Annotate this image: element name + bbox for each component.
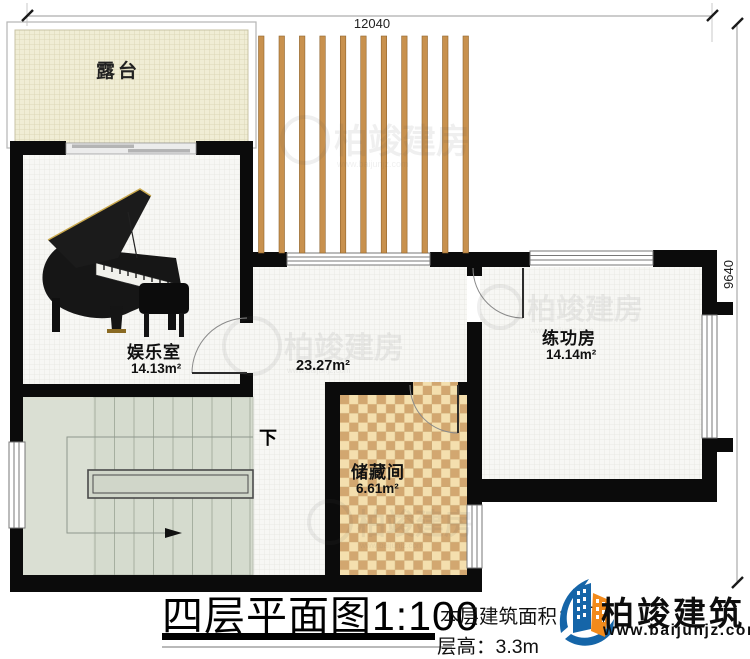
dimension-top-label: 12040 — [344, 17, 400, 30]
practice-room-label: 练功房 — [542, 330, 596, 347]
hall-top-window — [287, 253, 430, 265]
floor-plan-drawing: 柏竣建房 www.baijunjz.com 柏竣建房 www.baijunjz.… — [0, 0, 750, 658]
storage-door-notch-floor — [413, 382, 458, 395]
floor-plan-page: 柏竣建房 www.baijunjz.com 柏竣建房 www.baijunjz.… — [0, 0, 750, 658]
piano-pedal-lyre — [110, 306, 123, 331]
stairs-down-label: 下 — [259, 429, 277, 447]
hall-floor — [252, 265, 467, 384]
terrace-label: 露台 — [96, 62, 140, 81]
storage-room-label: 储藏间 — [351, 464, 405, 481]
svg-text:柏竣建房: 柏竣建房 — [334, 122, 470, 161]
svg-text:柏竣建房: 柏竣建房 — [357, 507, 473, 541]
title-underline-thin — [162, 646, 452, 648]
entertainment-room-area: 14.13m² — [131, 362, 181, 376]
corridor-floor — [253, 384, 325, 575]
entertainment-room-label: 娱乐室 — [127, 344, 181, 361]
watermark: 柏竣建房 www.baijunjz.com — [282, 117, 470, 169]
svg-text:柏竣建房: 柏竣建房 — [527, 292, 643, 326]
terrace-sliding-door — [66, 143, 196, 154]
floor-height: 层高：3.3m — [437, 630, 539, 659]
storage-room-area: 6.61m² — [356, 482, 399, 496]
practice-top-window — [530, 251, 653, 265]
practice-room-area: 14.14m² — [546, 348, 596, 362]
hall-area: 23.27m² — [296, 359, 350, 374]
door-opening-floor — [240, 323, 253, 373]
stairs-left-window — [9, 442, 25, 528]
dimension-right-label: 9640 — [722, 260, 735, 289]
terrace-structure — [7, 22, 256, 148]
title-underline-thick — [162, 633, 435, 640]
svg-text:www.baijunjz.com: www.baijunjz.com — [359, 541, 424, 550]
stair-handrail — [88, 470, 253, 498]
svg-text:www.baijunjz.com: www.baijunjz.com — [336, 159, 409, 169]
company-website: www.baijunjz.com — [603, 622, 750, 640]
practice-right-window — [702, 315, 717, 438]
staircase — [23, 397, 253, 575]
